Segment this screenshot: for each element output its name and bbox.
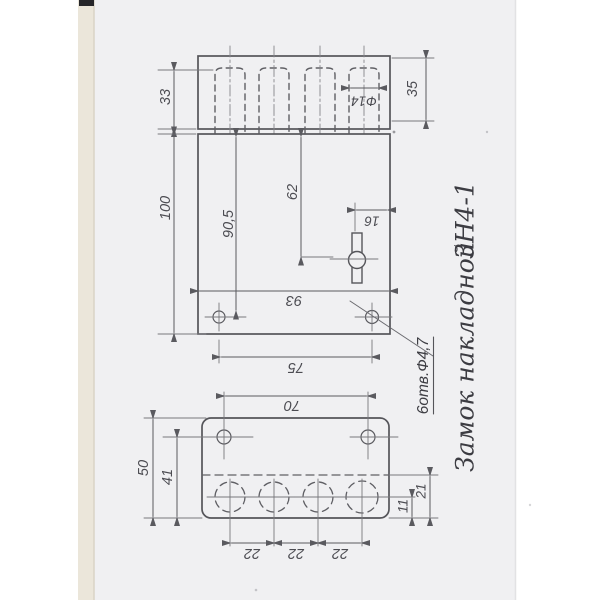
dim-text-plate-width: 50 — [136, 460, 152, 476]
dim-text-slot-depth: 33 — [158, 89, 174, 105]
dim-text-slot-diameter: Ф14 — [351, 93, 377, 108]
dim-text-mount-holes-span: 75 — [287, 359, 304, 375]
scan-speck — [255, 589, 258, 592]
title-block: Замок накладной ЗН4-1 — [451, 181, 480, 472]
dim-text-body-width: 93 — [286, 292, 302, 308]
scan-speck — [486, 131, 488, 133]
scan-speck — [529, 504, 531, 506]
dim-text-block-height: 35 — [405, 80, 421, 97]
dim-text-screw-holes-span: 70 — [284, 397, 300, 413]
technical-drawing: Ф14 33 35 93 — [0, 0, 600, 600]
dim-text-pitch-3: 22 — [332, 545, 349, 561]
dim-text-axis-from-edge: 21 — [414, 483, 429, 499]
scan-top-mark — [79, 0, 94, 6]
dim-text-pitch-2: 22 — [288, 545, 305, 561]
dim-text-body-length: 100 — [158, 196, 174, 220]
dim-text-centers-from-edge: 11 — [396, 499, 411, 513]
drawing-model-text: ЗН4-1 — [451, 181, 480, 259]
keyhole-circle — [349, 252, 366, 269]
paper-left-edge-strip — [78, 0, 94, 600]
scanned-drawing-page: Ф14 33 35 93 — [0, 0, 600, 600]
dim-text-keyhole-from-top: 62 — [285, 184, 301, 200]
drawing-title-text: Замок накладной — [451, 242, 480, 472]
dim-text-screw-hole-offset: 41 — [160, 469, 176, 485]
dim-text-keyhole-from-edge: 16 — [364, 213, 380, 228]
scan-speck — [393, 131, 396, 134]
holes-note-text: 6отв.Ф4,7 — [415, 336, 432, 414]
dim-text-hole-from-top: 90,5 — [221, 209, 237, 238]
dim-text-pitch-1: 22 — [244, 545, 261, 561]
